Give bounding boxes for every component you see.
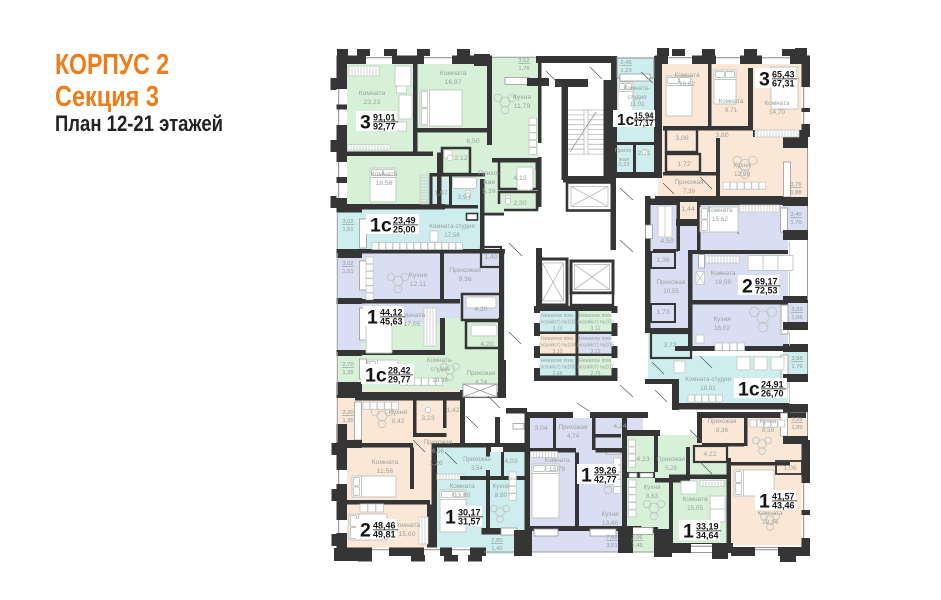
svg-text:3,23: 3,23	[421, 415, 434, 422]
svg-text:13,80: 13,80	[454, 492, 470, 499]
svg-text:11,56: 11,56	[377, 468, 394, 475]
svg-text:Комната: Комната	[682, 496, 707, 503]
svg-text:3,51: 3,51	[606, 543, 617, 549]
svg-text:3,54: 3,54	[471, 466, 483, 472]
svg-text:1,66: 1,66	[791, 315, 802, 321]
svg-text:1с: 1с	[370, 215, 392, 237]
svg-text:4,20: 4,20	[480, 341, 493, 348]
svg-text:13,46: 13,46	[602, 520, 618, 527]
svg-text:Комната: Комната	[718, 98, 743, 105]
svg-text:Прихожая: Прихожая	[559, 424, 588, 431]
svg-text:1с: 1с	[365, 365, 387, 387]
svg-text:(хозяйст) №103: (хозяйст) №103	[577, 319, 614, 326]
svg-text:2,66: 2,66	[553, 371, 563, 377]
svg-text:(хозяйст) №105: (хозяйст) №105	[577, 342, 614, 349]
svg-text:Комната: Комната	[372, 459, 399, 466]
svg-text:(хозяйст) №107: (хозяйст) №107	[577, 364, 614, 371]
svg-text:18,81: 18,81	[700, 385, 716, 392]
svg-text:Кухня: Кухня	[643, 484, 661, 491]
svg-text:Прихожая: Прихожая	[657, 279, 686, 286]
svg-text:29,77: 29,77	[388, 375, 411, 385]
svg-text:4,22: 4,22	[703, 451, 716, 458]
svg-text:Комната: Комната	[371, 171, 398, 178]
svg-text:23,23: 23,23	[363, 99, 380, 106]
svg-text:1: 1	[445, 507, 456, 529]
svg-text:Кухня: Кухня	[389, 409, 408, 416]
svg-text:19,59: 19,59	[715, 279, 731, 286]
svg-text:8,80: 8,80	[495, 492, 508, 499]
svg-text:5,28: 5,28	[665, 466, 677, 472]
svg-text:1,72: 1,72	[677, 161, 690, 168]
svg-text:1,36: 1,36	[656, 257, 669, 264]
svg-text:4,23: 4,23	[636, 456, 649, 463]
svg-text:1,70: 1,70	[790, 220, 801, 226]
svg-text:1,40: 1,40	[484, 254, 497, 261]
svg-text:Комната: Комната	[449, 483, 474, 490]
svg-text:1,79: 1,79	[791, 364, 802, 370]
svg-text:1,40: 1,40	[491, 546, 502, 552]
svg-text:Прихожая: Прихожая	[463, 457, 491, 463]
svg-text:1,45: 1,45	[631, 543, 642, 549]
svg-text:2,30: 2,30	[513, 200, 526, 207]
svg-text:8,42: 8,42	[391, 418, 404, 425]
svg-text:1с: 1с	[617, 112, 635, 129]
svg-text:2: 2	[742, 276, 753, 298]
svg-text:26,70: 26,70	[761, 389, 784, 399]
svg-text:3,10: 3,10	[553, 349, 563, 355]
svg-text:Нежилое пом.: Нежилое пом.	[541, 358, 574, 364]
svg-text:Комната: Комната	[359, 90, 386, 97]
svg-text:8,63: 8,63	[646, 493, 659, 500]
svg-text:(хозяйст) №106: (хозяйст) №106	[539, 364, 576, 371]
svg-text:Комната-: Комната-	[624, 85, 650, 92]
svg-text:Комната: Комната	[544, 457, 569, 464]
svg-text:45,63: 45,63	[380, 317, 403, 327]
svg-text:3: 3	[360, 112, 371, 134]
svg-text:Комната: Комната	[710, 270, 735, 277]
svg-text:2,22: 2,22	[618, 162, 629, 168]
svg-text:11,79: 11,79	[514, 103, 531, 110]
svg-text:4,03: 4,03	[504, 458, 517, 465]
svg-text:Нежилое пом.: Нежилое пом.	[541, 313, 574, 319]
svg-text:6,96: 6,96	[432, 448, 445, 455]
svg-text:КОРПУС 2: КОРПУС 2	[55, 49, 169, 81]
svg-text:13,78: 13,78	[549, 466, 565, 473]
svg-text:10,62: 10,62	[679, 81, 695, 88]
svg-text:Комната: Комната	[394, 522, 421, 529]
svg-text:Кухня: Кухня	[513, 94, 532, 101]
svg-text:1,97: 1,97	[434, 190, 447, 197]
svg-text:Кухня: Кухня	[409, 272, 428, 279]
svg-text:3,10: 3,10	[553, 326, 563, 332]
svg-text:3,80: 3,80	[715, 132, 728, 139]
svg-text:1: 1	[367, 307, 378, 329]
svg-text:10,55: 10,55	[663, 288, 679, 295]
svg-text:1,26: 1,26	[429, 460, 442, 467]
svg-text:17,05: 17,05	[403, 321, 420, 328]
svg-text:Прихожая: Прихожая	[424, 439, 453, 446]
svg-text:17,58: 17,58	[444, 232, 460, 239]
svg-text:12,99: 12,99	[734, 171, 750, 178]
svg-text:3,94: 3,94	[457, 194, 470, 201]
svg-text:1с: 1с	[738, 379, 760, 401]
svg-text:1,06: 1,06	[783, 465, 796, 472]
svg-text:2: 2	[360, 520, 371, 542]
svg-text:3,72: 3,72	[663, 342, 676, 349]
svg-text:Комната-студия: Комната-студия	[685, 376, 731, 383]
svg-text:5,39: 5,39	[482, 188, 495, 195]
svg-text:Нежилое пом.: Нежилое пом.	[579, 313, 612, 319]
svg-text:2,76: 2,76	[591, 371, 601, 377]
svg-text:Комната-студия: Комната-студия	[429, 223, 475, 230]
svg-text:жая: жая	[483, 179, 495, 186]
svg-text:Кухня: Кухня	[601, 511, 619, 518]
svg-text:1,35: 1,35	[342, 370, 353, 376]
svg-text:7,39: 7,39	[683, 188, 696, 195]
svg-text:92,77: 92,77	[373, 122, 396, 132]
svg-text:3,06: 3,06	[675, 135, 688, 142]
svg-text:1: 1	[581, 465, 592, 487]
svg-text:4,24: 4,24	[613, 423, 626, 430]
svg-text:Прихожая: Прихожая	[467, 370, 496, 377]
svg-text:49,81: 49,81	[373, 530, 396, 540]
svg-text:студия: студия	[430, 366, 449, 373]
svg-text:15,60: 15,60	[398, 531, 415, 538]
svg-text:Кухня: Кухня	[713, 316, 731, 323]
svg-text:43,46: 43,46	[772, 501, 795, 511]
svg-text:11,01: 11,01	[629, 101, 645, 108]
svg-text:2,71: 2,71	[637, 150, 650, 157]
svg-text:1,89: 1,89	[791, 425, 802, 431]
svg-text:Нежилое пом.: Нежилое пом.	[541, 336, 574, 342]
svg-text:(хозяйст) №102: (хозяйст) №102	[539, 319, 576, 326]
svg-text:16,97: 16,97	[444, 79, 461, 86]
svg-text:Комната: Комната	[764, 100, 789, 107]
svg-text:3,04: 3,04	[534, 425, 547, 432]
svg-text:Прихожая: Прихожая	[675, 179, 704, 186]
svg-text:1,51: 1,51	[342, 269, 353, 275]
svg-text:Прихо-: Прихо-	[615, 148, 634, 154]
svg-text:3: 3	[759, 69, 770, 91]
svg-text:4,74: 4,74	[567, 433, 580, 440]
svg-text:План 12-21 этажей: План 12-21 этажей	[55, 111, 223, 136]
svg-text:18,58: 18,58	[375, 180, 392, 187]
svg-text:17,17: 17,17	[634, 119, 654, 128]
svg-text:1,51: 1,51	[342, 227, 353, 233]
svg-text:1,88: 1,88	[790, 190, 801, 196]
svg-text:14,70: 14,70	[769, 109, 785, 116]
svg-text:1,23: 1,23	[620, 68, 631, 74]
svg-text:4,13: 4,13	[513, 175, 526, 182]
svg-text:1,76: 1,76	[518, 66, 529, 72]
svg-text:Кухня: Кухня	[492, 483, 510, 490]
svg-text:8,36: 8,36	[716, 427, 729, 434]
svg-text:1,42: 1,42	[446, 407, 459, 414]
svg-text:студия: студия	[627, 94, 646, 101]
svg-text:1: 1	[759, 491, 770, 513]
svg-text:Комната: Комната	[707, 207, 732, 214]
svg-text:12,11: 12,11	[410, 281, 427, 288]
svg-text:42,77: 42,77	[594, 475, 617, 485]
svg-text:8,59: 8,59	[762, 427, 775, 434]
svg-text:34,64: 34,64	[696, 531, 719, 541]
svg-text:Секция 3: Секция 3	[55, 81, 159, 113]
svg-text:2,12: 2,12	[454, 155, 467, 162]
svg-text:3,12: 3,12	[591, 326, 601, 332]
svg-text:Прихо-: Прихо-	[478, 170, 500, 177]
svg-text:Нежилое пом.: Нежилое пом.	[579, 336, 612, 342]
svg-text:(хозяйст) №104: (хозяйст) №104	[539, 342, 576, 349]
svg-text:Кухня: Кухня	[733, 162, 751, 169]
svg-text:Нежилое пом.: Нежилое пом.	[579, 358, 612, 364]
svg-text:16,02: 16,02	[714, 325, 730, 332]
svg-text:4,20: 4,20	[474, 306, 487, 313]
svg-text:19,34: 19,34	[762, 519, 778, 526]
svg-text:Прихожая: Прихожая	[657, 457, 685, 463]
svg-text:1,73: 1,73	[656, 309, 669, 316]
svg-text:1,35: 1,35	[342, 418, 353, 424]
svg-text:1,44: 1,44	[681, 206, 694, 213]
svg-text:4,50: 4,50	[660, 238, 673, 245]
svg-text:72,53: 72,53	[755, 286, 778, 296]
svg-text:Комната: Комната	[674, 72, 699, 79]
svg-text:3,12: 3,12	[591, 349, 601, 355]
svg-text:Прихожая: Прихожая	[708, 418, 737, 425]
svg-text:4,24: 4,24	[475, 379, 488, 386]
svg-text:9,71: 9,71	[725, 107, 738, 114]
svg-text:6,50: 6,50	[466, 138, 479, 145]
svg-text:19,98: 19,98	[432, 377, 448, 384]
svg-text:15,62: 15,62	[712, 216, 728, 223]
svg-text:9,36: 9,36	[458, 276, 471, 283]
svg-text:1: 1	[683, 521, 694, 543]
svg-text:Комната-: Комната-	[427, 357, 453, 364]
svg-text:Кухня: Кухня	[760, 418, 777, 425]
svg-text:Комната: Комната	[440, 70, 467, 77]
svg-text:67,31: 67,31	[772, 79, 795, 89]
svg-text:25,00: 25,00	[393, 225, 416, 235]
svg-text:15,05: 15,05	[687, 505, 703, 512]
svg-text:Прихожая: Прихожая	[449, 267, 481, 274]
svg-text:31,57: 31,57	[458, 517, 481, 527]
